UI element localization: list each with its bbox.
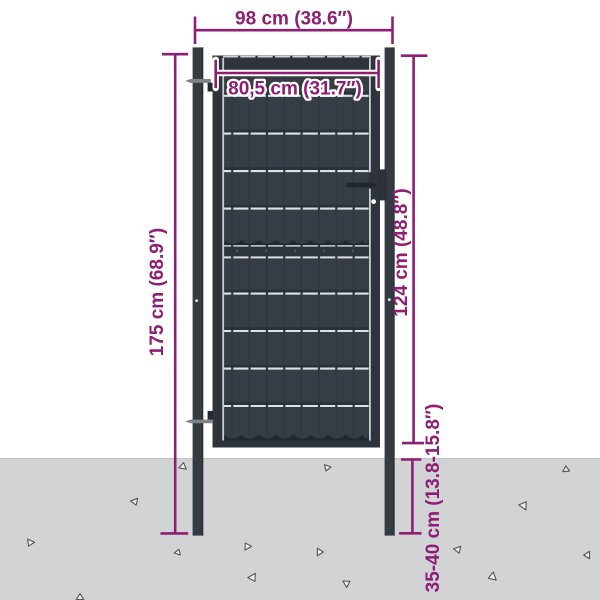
- svg-text:80,5 cm (31.7″): 80,5 cm (31.7″): [228, 79, 362, 100]
- svg-text:35-40 cm (13.8-15.8″): 35-40 cm (13.8-15.8″): [423, 404, 444, 593]
- svg-text:98 cm (38.6″): 98 cm (38.6″): [235, 9, 353, 30]
- svg-text:175 cm (68.9″): 175 cm (68.9″): [147, 228, 168, 356]
- svg-text:124 cm (48.8″): 124 cm (48.8″): [391, 188, 412, 316]
